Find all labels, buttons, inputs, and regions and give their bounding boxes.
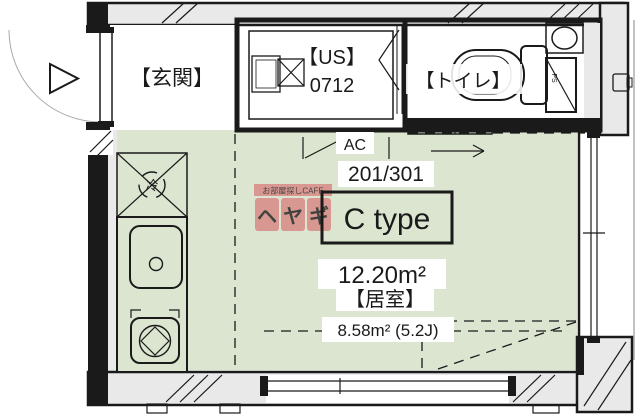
basin-icon [552, 27, 577, 49]
entrance-label: 【玄関】 [130, 67, 214, 90]
bottom-window [260, 375, 516, 403]
left-wall-inner-face [108, 130, 117, 372]
unit-bath-label: 【US】 [298, 47, 366, 69]
room-area-label: 8.58m² (5.2J) [337, 321, 438, 340]
left-wall [88, 130, 108, 405]
wall-step [577, 337, 584, 375]
door-cap-top [98, 27, 114, 33]
bath-folding-door [379, 30, 399, 90]
watermark-char: ギ [309, 205, 329, 228]
watermark-tagline: お部屋探しCAFE [262, 186, 323, 196]
refrigerator-label: 冷 [145, 178, 158, 193]
toilet-right-fill [584, 23, 600, 118]
watermark-char: ヤ [283, 206, 303, 228]
watermark: お部屋探しCAFE ヘ ヤ ギ [254, 184, 332, 231]
door-opening [88, 25, 108, 130]
floor-plan: 【玄関】 【US】 0712 PS 【トイレ】 [0, 0, 640, 414]
toilet-room: PS 【トイレ】 [405, 20, 632, 134]
door-cap-bottom [98, 121, 114, 127]
total-area-label: 12.20m² [338, 262, 426, 289]
right-wall-upper [600, 3, 628, 135]
shower-tray-inner [256, 60, 276, 88]
pipe-space-label: PS [550, 73, 557, 83]
unit-bath-room: 【US】 0712 [237, 20, 405, 130]
kitchen-counter [117, 217, 187, 372]
unit-numbers: 201/301 [348, 163, 424, 186]
entrance-area: 【玄関】 [9, 25, 237, 130]
plan-type-label: C type [344, 203, 431, 236]
top-left-corner [88, 3, 108, 25]
ac-label: AC [344, 137, 366, 154]
watermark-char: ヘ [257, 206, 277, 228]
room-name-label: 【居室】 [345, 288, 425, 311]
entrance-corner [88, 130, 113, 155]
entrance-arrow-icon [50, 64, 78, 93]
floor-plan-svg: 【玄関】 【US】 0712 PS 【トイレ】 [0, 0, 640, 414]
toilet-bottom-wall [405, 118, 600, 130]
window-bay [580, 130, 634, 370]
door-swing-arc [9, 30, 101, 122]
unit-bath-number: 0712 [310, 75, 355, 97]
toilet-label: 【トイレ】 [415, 70, 510, 92]
